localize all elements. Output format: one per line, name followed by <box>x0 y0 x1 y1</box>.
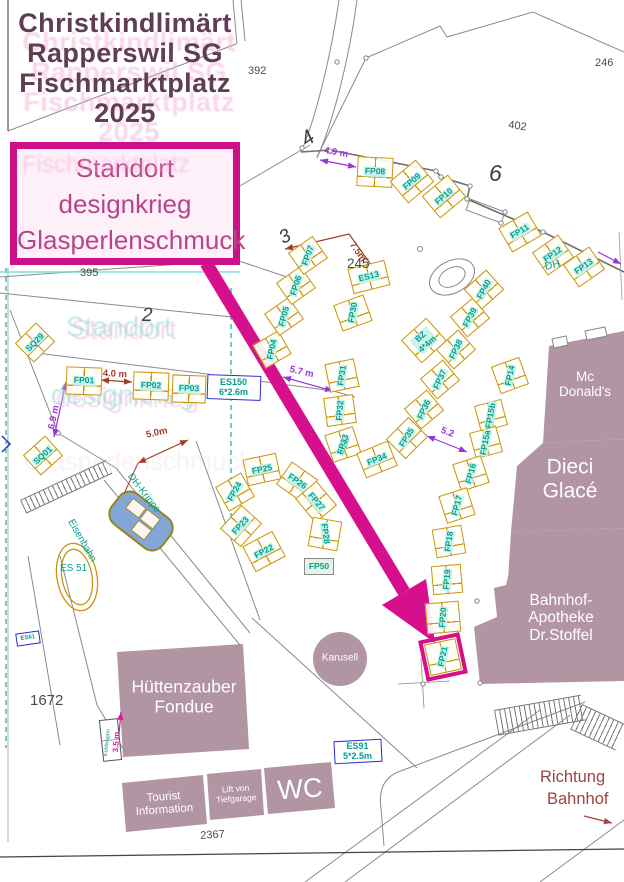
map-label: DH <box>544 259 561 272</box>
map-label: 392 <box>248 66 266 77</box>
stall-label: FP36 <box>415 397 433 421</box>
dimension-label: 4.0 m <box>102 368 127 380</box>
stall-label: FP23 <box>230 515 252 538</box>
stall-label: FP10 <box>432 186 455 207</box>
stall-FP50: FP50 <box>304 558 334 575</box>
dimension-label: 5.7 m <box>289 364 315 380</box>
stall-label: FP01 <box>73 376 96 386</box>
callout-line: Glasperlenschmuck <box>17 222 233 258</box>
callout-line: designkrieg <box>17 186 233 222</box>
stall-label: FP11 <box>508 223 532 242</box>
stall-label: FP04 <box>265 338 279 362</box>
standort-callout: Fischmarktplatz StandortdesignkriegGlasp… <box>10 142 240 265</box>
stall-label: FP30 <box>347 301 360 325</box>
stall-label: FP34 <box>365 451 389 468</box>
stall-label: FP16 <box>464 462 479 486</box>
building-label-tourist-information: Tourist Information <box>134 789 193 819</box>
stall-label: FP37 <box>431 367 449 391</box>
stall-label: FP38 <box>447 337 465 361</box>
building-label-mcdonalds: Mc Donald's <box>559 369 611 399</box>
dimension-label: 6.9 m <box>46 404 62 430</box>
stall-label: FP05 <box>277 305 292 329</box>
map-label: Eisenbahn <box>65 518 97 564</box>
stall-label: FP50 <box>308 562 330 571</box>
stall-label: FP27 <box>305 490 326 513</box>
stall-FP20: FP20 <box>425 601 462 635</box>
map-label: ES 51 <box>60 564 87 574</box>
map-label: 402 <box>507 120 527 133</box>
stall-label: FP18 <box>443 530 455 553</box>
stall-label: FP06 <box>288 273 304 297</box>
map-label: 2 <box>142 306 153 325</box>
stall-label: FP07 <box>300 243 316 267</box>
stall-FP18: FP18 <box>432 525 467 559</box>
stall-label: FP35 <box>397 426 417 450</box>
stall-label: ES61 <box>19 634 36 643</box>
stall-ES150: ES150 6*2.6m <box>207 374 262 401</box>
title-line: 2025 <box>8 98 242 128</box>
stall-label: FP39 <box>461 305 480 329</box>
map-label: 4 <box>297 126 319 150</box>
stall-label: FP02 <box>140 381 163 391</box>
stall-label: FP24 <box>225 480 244 504</box>
stall-label: FP03 <box>178 384 201 394</box>
building-label-karusell: Karusell <box>322 652 358 663</box>
map-label: 6 <box>489 162 502 185</box>
dimension-label: 4.9 m <box>323 145 349 160</box>
stall-FP03: FP03 <box>172 374 207 403</box>
stall-label: SQ29 <box>23 331 46 354</box>
map-label: Bahnhof <box>547 791 608 808</box>
ghost-text: Standort <box>66 313 172 341</box>
title-line: Christkindlimärt <box>8 8 242 38</box>
dimension-label: 3.5 m <box>111 732 121 753</box>
stall-label: FP31 <box>336 364 348 387</box>
stall-label: ES13 <box>357 270 381 284</box>
callout-ghost-text: Fischmarktplatz <box>22 147 190 183</box>
stall-label: ES91 5*2.5m <box>342 742 373 761</box>
building-label-wc: WC <box>277 772 324 805</box>
stall-FP01: FP01 <box>66 366 103 395</box>
map-label: 395 <box>80 268 98 279</box>
title-line: Fischmarktplatz <box>8 68 242 98</box>
stall-label: FP17 <box>450 494 465 518</box>
stall-label: FP14 <box>503 364 517 388</box>
stall-label: FP40 <box>475 277 494 301</box>
building-label-lift-tiefgarage: Lift von Tiefgarage <box>215 783 257 805</box>
stall-label: FP15a <box>479 428 493 456</box>
stall-label: SQ01 <box>31 444 55 467</box>
map-label: 3 <box>276 226 294 248</box>
stall-label: FP20 <box>437 606 448 629</box>
christkindlimaert-map-flyer: StandortStandortdesignkriegdesignkriegGl… <box>0 0 624 882</box>
stall-FP32: FP32 <box>323 394 357 427</box>
stall-FP31: FP31 <box>324 358 359 393</box>
stall-label: FP25 <box>250 463 274 477</box>
stall-label: FP08 <box>364 167 387 177</box>
building-label-dieci-glace: Dieci Glacé <box>543 455 598 502</box>
stall-label: FP28 <box>319 522 331 545</box>
map-label: 1672 <box>30 693 63 708</box>
stall-label: BZ 4*4m <box>410 326 439 355</box>
stall-FP21: FP21 <box>424 638 462 676</box>
stall-FP02: FP02 <box>133 371 170 400</box>
stall-label: FP32 <box>334 399 345 422</box>
map-label: Richtung <box>540 769 605 786</box>
stall-FP28: FP28 <box>308 517 343 552</box>
stall-label: FP21 <box>436 645 450 669</box>
map-label: DH-Krippe <box>125 472 162 515</box>
dimension-label: 5.2 <box>439 425 455 440</box>
building-label-huettenzauber: Hüttenzauber Fondue <box>131 677 236 716</box>
stall-label: FP13 <box>572 257 596 277</box>
stall-FP19: FP19 <box>431 564 463 596</box>
stall-label: FP19 <box>441 568 452 591</box>
dimension-label: 5.0m <box>145 425 169 441</box>
stall-label: FP09 <box>400 171 423 192</box>
stall-label: ES150 6*2.6m <box>218 378 249 397</box>
building-label-bahnhof-apotheke: Bahnhof- Apotheke Dr.Stoffel <box>528 592 594 644</box>
stall-FP08: FP08 <box>356 156 394 188</box>
map-label: 2367 <box>200 829 225 842</box>
title-line: Rapperswil SG <box>8 38 242 68</box>
map-label: 246 <box>595 58 613 69</box>
page-title: ChristkindlimärtRapperswil SGFischmarktp… <box>8 8 242 128</box>
stall-label: FP22 <box>252 542 276 561</box>
stall-ES91: ES91 5*2.5m <box>333 739 382 764</box>
